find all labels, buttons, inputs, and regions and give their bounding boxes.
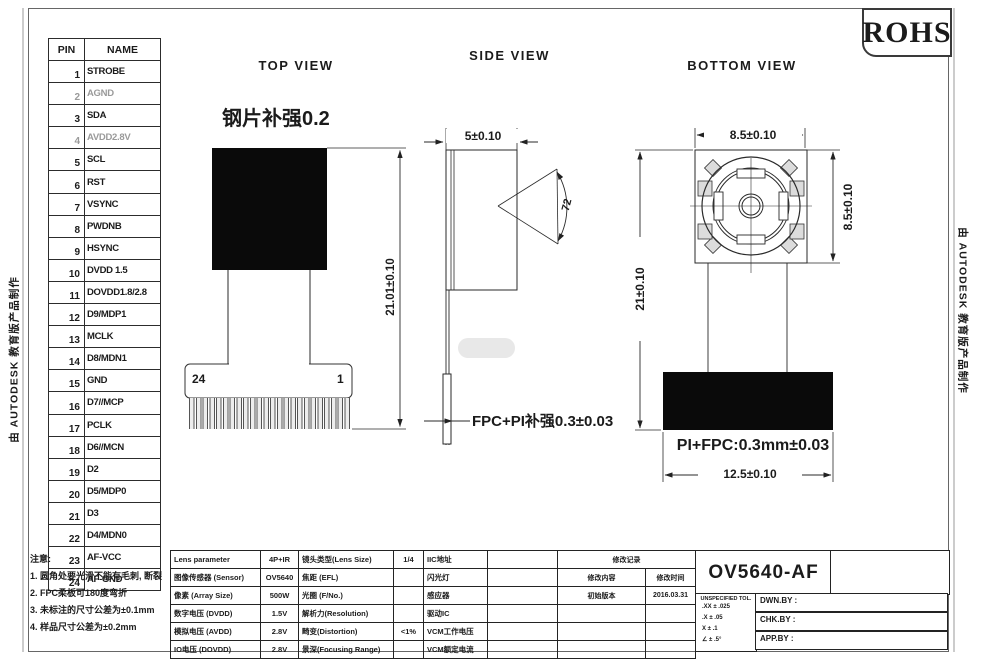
drawn-by-cell: DWN.BY : xyxy=(755,593,948,612)
spec-label: IO电压 (DOVDD) xyxy=(171,641,261,659)
pin-row: 19D2 xyxy=(49,458,161,480)
spec-value: 2.8V xyxy=(261,641,299,659)
pin-row: 5SCL xyxy=(49,149,161,171)
spec-value: 1.5V xyxy=(261,605,299,623)
spec-label: VCM额定电流 xyxy=(424,641,488,659)
pin-name: SDA xyxy=(85,105,161,127)
rohs-label: ROHS xyxy=(862,16,951,50)
spec-label: 焦距 (EFL) xyxy=(299,569,394,587)
pin-row: 10DVDD 1.5 xyxy=(49,259,161,281)
revision-cell xyxy=(558,641,646,659)
pin-row: 22D4/MDN0 xyxy=(49,524,161,546)
pin-number: 19 xyxy=(49,458,85,480)
pin-number: 20 xyxy=(49,480,85,502)
spec-label: 模拟电压 (AVDD) xyxy=(171,623,261,641)
pin-number: 5 xyxy=(49,149,85,171)
side-fpc-note: FPC+PI补强0.3±0.03 xyxy=(472,410,613,431)
notes-block: 注意: 1. 圆角处要光滑不能有毛刺, 断裂 2. FPC柔板可180度弯折 3… xyxy=(30,551,170,636)
revision-cell: 修改记录 xyxy=(558,551,696,569)
revision-cell xyxy=(558,623,646,641)
spec-value xyxy=(488,641,558,659)
spec-row: 像素 (Array Size)500W光圈 (F/No.)感应器初始版本2016… xyxy=(171,587,696,605)
tolerance-row: .X ± .05 xyxy=(696,613,756,624)
pin-row: 20D5/MDP0 xyxy=(49,480,161,502)
pin-number: 4 xyxy=(49,127,85,149)
connector-pin1-label: 1 xyxy=(337,372,344,386)
revision-cell xyxy=(646,641,696,659)
tolerance-header: UNSPECIFIED TOL. xyxy=(696,594,756,602)
spec-value xyxy=(488,551,558,569)
fpc-connector-fingers xyxy=(189,398,350,429)
bottom-height-dim: 8.5±0.10 xyxy=(841,157,855,257)
steel-stiffener-note: 钢片补强0.2 xyxy=(222,102,330,131)
revision-cell: 初始版本 xyxy=(558,587,646,605)
spec-label: IIC地址 xyxy=(424,551,488,569)
pin-number: 7 xyxy=(49,193,85,215)
pin-number: 11 xyxy=(49,281,85,303)
spec-value xyxy=(488,587,558,605)
spec-label: 数字电压 (DVDD) xyxy=(171,605,261,623)
spec-value xyxy=(394,587,424,605)
spec-label: 驱动IC xyxy=(424,605,488,623)
pin-row: 18D6//MCN xyxy=(49,436,161,458)
bottom-base-width-dim: 12.5±0.10 xyxy=(698,467,802,481)
pin-number: 15 xyxy=(49,370,85,392)
spec-row: 图像传感器 (Sensor)OV5640焦距 (EFL)闪光灯修改内容修改时间 xyxy=(171,569,696,587)
spec-value xyxy=(488,569,558,587)
pin-row: 21D3 xyxy=(49,502,161,524)
watermark-right: 由 AUTODESK 教育版产品制作 xyxy=(956,201,971,421)
pin-number: 6 xyxy=(49,171,85,193)
bottom-width-dim: 8.5±0.10 xyxy=(704,128,802,142)
spec-label: 景深(Focusing Range) xyxy=(299,641,394,659)
pin-number: 12 xyxy=(49,304,85,326)
spec-label: 解析力(Resolution) xyxy=(299,605,394,623)
spec-value: <1% xyxy=(394,623,424,641)
spec-value xyxy=(488,623,558,641)
revision-cell xyxy=(646,605,696,623)
name-header: NAME xyxy=(85,39,161,61)
pin-number: 10 xyxy=(49,259,85,281)
pin-name: D4/MDN0 xyxy=(85,524,161,546)
spec-value xyxy=(394,641,424,659)
pin-name: AVDD2.8V xyxy=(85,127,161,149)
spec-label: 感应器 xyxy=(424,587,488,605)
revision-cell xyxy=(558,605,646,623)
note-line: 2. FPC柔板可180度弯折 xyxy=(30,585,170,602)
top-height-dim: 21.01±0.10 xyxy=(385,235,397,339)
spec-row: Lens parameter4P+IR镜头类型(Lens Size)1/4IIC… xyxy=(171,551,696,569)
top-view-title: TOP VIEW xyxy=(240,58,352,73)
note-line: 3. 未标注的尺寸公差为±0.1mm xyxy=(30,602,170,619)
spec-label: 图像传感器 (Sensor) xyxy=(171,569,261,587)
revision-cell xyxy=(646,623,696,641)
pin-row: 7VSYNC xyxy=(49,193,161,215)
note-line: 1. 圆角处要光滑不能有毛刺, 断裂 xyxy=(30,568,170,585)
tolerance-row: X ± .1 xyxy=(696,624,756,635)
revision-cell: 修改内容 xyxy=(558,569,646,587)
pin-row: 4AVDD2.8V xyxy=(49,127,161,149)
pin-row: 13MCLK xyxy=(49,326,161,348)
drawing-sheet: ROHS 由 AUTODESK 教育版产品制作 由 AUTODESK 教育版产品… xyxy=(0,0,993,660)
revision-cell: 修改时间 xyxy=(646,569,696,587)
bottom-fpc-note: PI+FPC:0.3mm±0.03 xyxy=(666,437,840,455)
spec-row: 数字电压 (DVDD)1.5V解析力(Resolution)驱动IC xyxy=(171,605,696,623)
pin-name: MCLK xyxy=(85,326,161,348)
side-width-dim: 5±0.10 xyxy=(446,129,520,143)
pin-name: D5/MDP0 xyxy=(85,480,161,502)
pin-number: 18 xyxy=(49,436,85,458)
pin-number: 8 xyxy=(49,215,85,237)
pin-row: 12D9/MDP1 xyxy=(49,304,161,326)
pin-number: 22 xyxy=(49,524,85,546)
pin-name: HSYNC xyxy=(85,237,161,259)
pin-name: AGND xyxy=(85,83,161,105)
pin-name: D3 xyxy=(85,502,161,524)
spec-label: 像素 (Array Size) xyxy=(171,587,261,605)
pin-name: VSYNC xyxy=(85,193,161,215)
pin-number: 2 xyxy=(49,83,85,105)
spec-row: IO电压 (DOVDD)2.8V景深(Focusing Range)VCM额定电… xyxy=(171,641,696,659)
pin-row: 1STROBE xyxy=(49,61,161,83)
pin-row: 11DOVDD1.8/2.8 xyxy=(49,281,161,303)
pin-number: 9 xyxy=(49,237,85,259)
pin-number: 1 xyxy=(49,61,85,83)
spec-value xyxy=(488,605,558,623)
pin-name: PCLK xyxy=(85,414,161,436)
pin-name: SCL xyxy=(85,149,161,171)
spec-label: 闪光灯 xyxy=(424,569,488,587)
rohs-badge: ROHS xyxy=(862,8,952,57)
spec-value: 1/4 xyxy=(394,551,424,569)
signoff-block: DWN.BY : CHK.BY : APP.BY : xyxy=(755,593,948,650)
tolerance-block: UNSPECIFIED TOL. .XX ± .025 .X ± .05 X ±… xyxy=(695,593,757,652)
pin-row: 8PWDNB xyxy=(49,215,161,237)
pin-row: 17PCLK xyxy=(49,414,161,436)
spec-row: 模拟电压 (AVDD)2.8V畸变(Distortion)<1%VCM工作电压 xyxy=(171,623,696,641)
tolerance-row: ∠ ± .5° xyxy=(696,635,756,646)
spec-value: 4P+IR xyxy=(261,551,299,569)
pin-name: D2 xyxy=(85,458,161,480)
pin-number: 17 xyxy=(49,414,85,436)
pin-number: 13 xyxy=(49,326,85,348)
pin-name: DOVDD1.8/2.8 xyxy=(85,281,161,303)
pin-row: 15GND xyxy=(49,370,161,392)
pin-name: D6//MCN xyxy=(85,436,161,458)
pin-row: 6RST xyxy=(49,171,161,193)
spec-value xyxy=(394,569,424,587)
bottom-view-title: BOTTOM VIEW xyxy=(678,58,806,73)
pin-name: D9/MDP1 xyxy=(85,304,161,326)
spec-label: Lens parameter xyxy=(171,551,261,569)
pin-row: 9HSYNC xyxy=(49,237,161,259)
spec-label: VCM工作电压 xyxy=(424,623,488,641)
spec-value xyxy=(394,605,424,623)
pin-name: DVDD 1.5 xyxy=(85,259,161,281)
pin-number: 14 xyxy=(49,348,85,370)
spec-label: 光圈 (F/No.) xyxy=(299,587,394,605)
spec-table: Lens parameter4P+IR镜头类型(Lens Size)1/4IIC… xyxy=(170,550,696,659)
title-block-blank-cell xyxy=(830,550,950,595)
tolerance-row: .XX ± .025 xyxy=(696,602,756,613)
pin-name: RST xyxy=(85,171,161,193)
pin-row: 3SDA xyxy=(49,105,161,127)
approved-by-cell: APP.BY : xyxy=(755,631,948,650)
pin-row: 16D7//MCP xyxy=(49,392,161,414)
pin-row: 2AGND xyxy=(49,83,161,105)
connector-pin24-label: 24 xyxy=(192,372,205,386)
pin-name: D8/MDN1 xyxy=(85,348,161,370)
checked-by-cell: CHK.BY : xyxy=(755,612,948,631)
part-number-cell: OV5640-AF xyxy=(695,550,832,595)
pin-name: D7//MCP xyxy=(85,392,161,414)
note-line: 4. 样品尺寸公差为±0.2mm xyxy=(30,619,170,636)
spec-label: 畸变(Distortion) xyxy=(299,623,394,641)
revision-cell: 2016.03.31 xyxy=(646,587,696,605)
pin-number: 21 xyxy=(49,502,85,524)
spec-value: 500W xyxy=(261,587,299,605)
bottom-total-height-dim: 21±0.10 xyxy=(633,237,647,341)
pin-name: PWDNB xyxy=(85,215,161,237)
pin-name: STROBE xyxy=(85,61,161,83)
notes-title: 注意: xyxy=(30,551,170,568)
spec-value: OV5640 xyxy=(261,569,299,587)
pin-number: 3 xyxy=(49,105,85,127)
spec-value: 2.8V xyxy=(261,623,299,641)
watermark-left: 由 AUTODESK 教育版产品制作 xyxy=(7,250,22,470)
pin-row: 14D8/MDN1 xyxy=(49,348,161,370)
pin-name: GND xyxy=(85,370,161,392)
spec-label: 镜头类型(Lens Size) xyxy=(299,551,394,569)
pin-number: 16 xyxy=(49,392,85,414)
pin-header: PIN xyxy=(49,39,85,61)
pin-table: PIN NAME 1STROBE2AGND3SDA4AVDD2.8V5SCL6R… xyxy=(48,38,161,591)
part-number: OV5640-AF xyxy=(708,562,818,584)
side-view-title: SIDE VIEW xyxy=(452,48,567,63)
